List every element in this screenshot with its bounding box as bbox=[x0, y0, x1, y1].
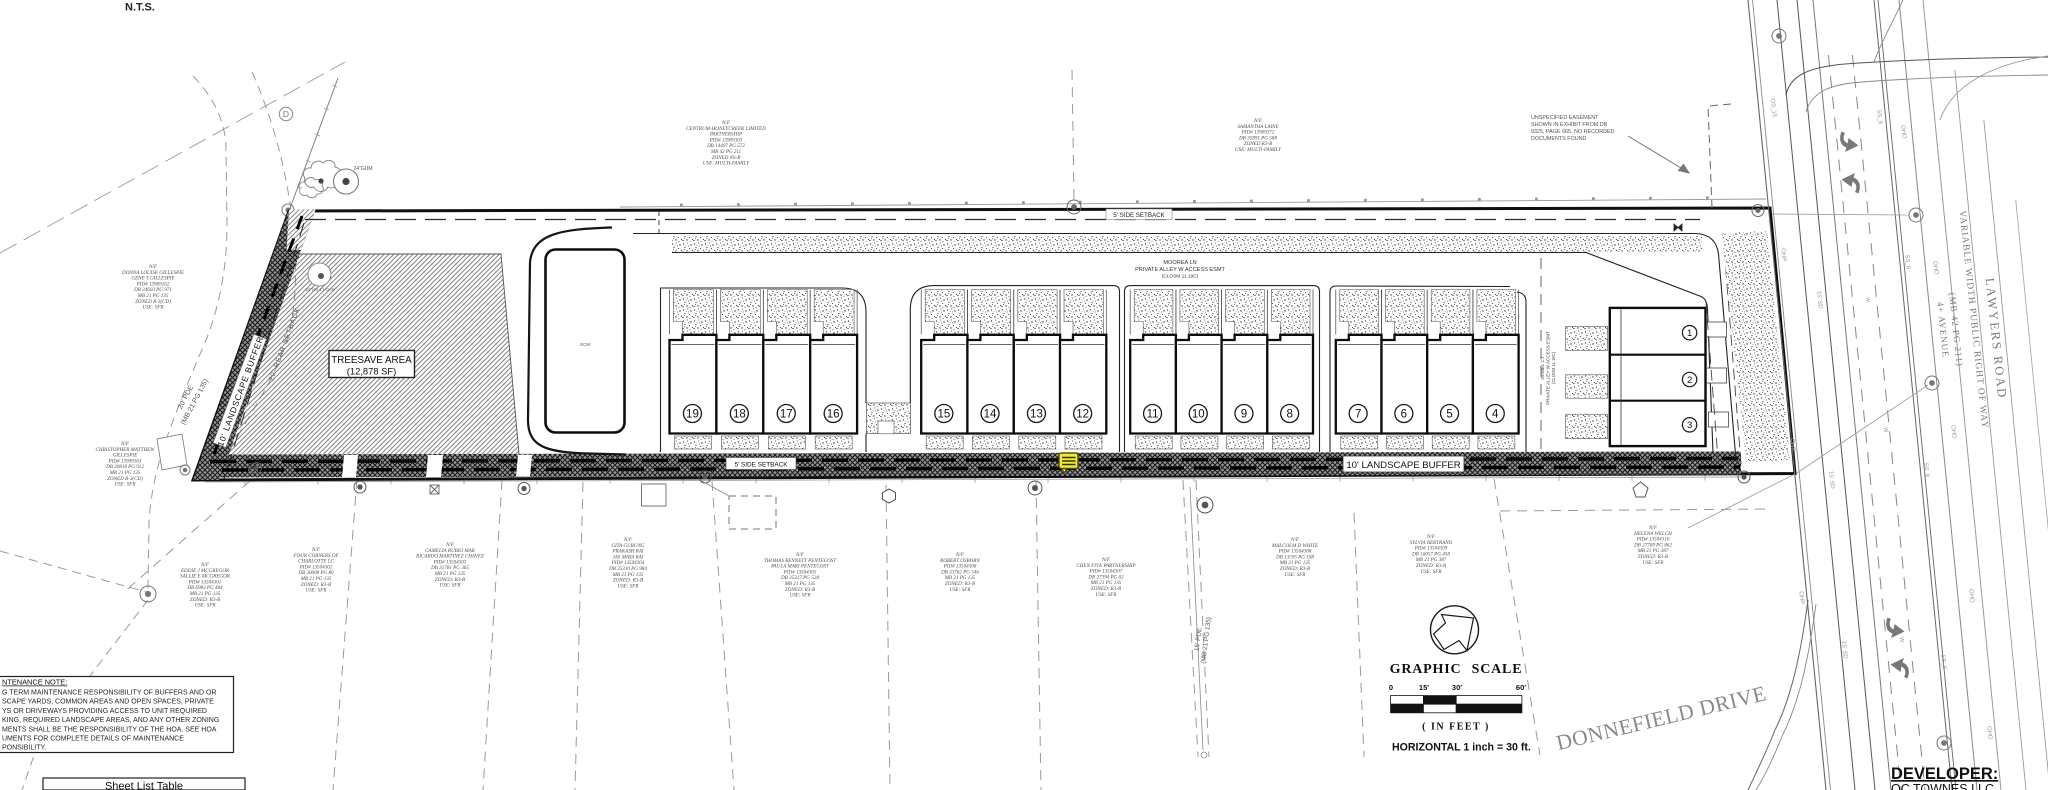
svg-text:W: W bbox=[1864, 297, 1871, 304]
svg-text:D: D bbox=[283, 109, 289, 119]
svg-text:15: 15 bbox=[937, 409, 950, 421]
svg-text:USE: SFR: USE: SFR bbox=[789, 593, 811, 599]
svg-text:16: 16 bbox=[827, 409, 840, 421]
svg-text:NTENANCE NOTE:: NTENANCE NOTE: bbox=[2, 678, 67, 687]
svg-text:DEVELOPER:: DEVELOPER: bbox=[1891, 765, 1998, 783]
svg-text:PRIVATE ALLEY W ACCESS ESMT: PRIVATE ALLEY W ACCESS ESMT bbox=[1546, 331, 1551, 405]
svg-text:UMENTS FOR COMPLETE DETAILS OF: UMENTS FOR COMPLETE DETAILS OF MAINTENAN… bbox=[2, 736, 184, 743]
svg-text:SCAPE YARDS, COMMON AREAS AND: SCAPE YARDS, COMMON AREAS AND OPEN SPACE… bbox=[2, 699, 214, 706]
svg-text:USE: SFR: USE: SFR bbox=[142, 305, 164, 311]
svg-text:11: 11 bbox=[1147, 409, 1159, 421]
svg-text:W: W bbox=[1882, 427, 1889, 434]
svg-text:MOOREA LN: MOOREA LN bbox=[1163, 260, 1196, 266]
svg-text:USE: SFR: USE: SFR bbox=[1420, 569, 1442, 575]
svg-text:MENTS SHALL BE THE RESPONSIBIL: MENTS SHALL BE THE RESPONSIBILITY OF THE… bbox=[2, 726, 217, 733]
svg-text:2: 2 bbox=[1687, 375, 1692, 386]
svg-text:3: 3 bbox=[1687, 420, 1692, 431]
svg-text:17: 17 bbox=[780, 409, 793, 421]
svg-text:GRAPHIC SCALE: GRAPHIC SCALE bbox=[1390, 662, 1523, 677]
svg-text:0: 0 bbox=[1389, 683, 1393, 692]
svg-text:G TERM MAINTENANCE RESPONSIBIL: G TERM MAINTENANCE RESPONSIBILITY OF BUF… bbox=[2, 690, 216, 697]
svg-text:24"GUM: 24"GUM bbox=[353, 166, 372, 172]
svg-text:USE: SFR: USE: SFR bbox=[439, 583, 461, 589]
svg-text:6: 6 bbox=[1401, 409, 1407, 421]
svg-text:PRIVATE ALLEY W ACCESS ESMT: PRIVATE ALLEY W ACCESS ESMT bbox=[1135, 267, 1225, 273]
svg-text:12: 12 bbox=[1076, 409, 1089, 421]
svg-text:7: 7 bbox=[1355, 409, 1361, 421]
svg-text:19: 19 bbox=[686, 409, 699, 421]
svg-text:5' SIDE SETBACK: 5' SIDE SETBACK bbox=[734, 461, 788, 468]
svg-text:15': 15' bbox=[1419, 683, 1429, 692]
svg-text:18: 18 bbox=[733, 409, 746, 421]
svg-text:24"(40.1') OAK: 24"(40.1') OAK bbox=[305, 287, 334, 292]
svg-text:9325, PAGE 665. NO RECORDED: 9325, PAGE 665. NO RECORDED bbox=[1531, 129, 1615, 135]
svg-text:( IN FEET ): ( IN FEET ) bbox=[1422, 722, 1490, 733]
svg-text:YS OR DRIVEWAYS PROVIDING ACCE: YS OR DRIVEWAYS PROVIDING ACCESS TO UNIT… bbox=[2, 708, 207, 715]
svg-text:1: 1 bbox=[1687, 328, 1692, 339]
svg-text:(12,878 SF): (12,878 SF) bbox=[347, 366, 397, 377]
svg-text:5: 5 bbox=[1446, 409, 1452, 421]
svg-text:SCM: SCM bbox=[580, 342, 590, 347]
svg-text:USE: SFR: USE: SFR bbox=[617, 583, 639, 589]
svg-text:5' SIDE SETBACK: 5' SIDE SETBACK bbox=[1113, 212, 1165, 219]
svg-text:DOCUMENTS FOUND: DOCUMENTS FOUND bbox=[1531, 136, 1587, 142]
svg-text:10: 10 bbox=[1192, 409, 1205, 421]
svg-text:USE: SFR: USE: SFR bbox=[1284, 572, 1306, 578]
svg-text:USE: SFR: USE: SFR bbox=[1642, 560, 1664, 566]
svg-text:USE: SFR: USE: SFR bbox=[949, 587, 971, 593]
svg-text:13: 13 bbox=[1030, 409, 1043, 421]
svg-text:USE: SFR: USE: SFR bbox=[194, 603, 216, 609]
svg-text:8: 8 bbox=[1286, 409, 1292, 421]
svg-text:W: W bbox=[1898, 637, 1905, 644]
svg-text:(CLOSM 11.19C): (CLOSM 11.19C) bbox=[1162, 274, 1199, 280]
svg-text:14: 14 bbox=[984, 409, 997, 421]
svg-text:USE: SFR: USE: SFR bbox=[1095, 592, 1117, 598]
svg-text:(CLOSM 11.19C): (CLOSM 11.19C) bbox=[1551, 351, 1556, 384]
svg-text:GAMEL CT: GAMEL CT bbox=[1540, 356, 1545, 380]
svg-text:KING, REQUIRED LANDSCAPE AREAS: KING, REQUIRED LANDSCAPE AREAS, AND ANY … bbox=[2, 717, 219, 724]
svg-text:HORIZONTAL 1 inch = 30 ft.: HORIZONTAL 1 inch = 30 ft. bbox=[1392, 742, 1531, 754]
svg-text:UNSPECIFIED EASEMENT: UNSPECIFIED EASEMENT bbox=[1531, 115, 1599, 121]
svg-text:Sheet List Table: Sheet List Table bbox=[105, 781, 183, 790]
svg-text:N.T.S.: N.T.S. bbox=[125, 2, 155, 14]
svg-text:USE: SFR: USE: SFR bbox=[114, 482, 136, 488]
svg-text:10' LANDSCAPE BUFFER: 10' LANDSCAPE BUFFER bbox=[1346, 460, 1460, 471]
svg-text:4: 4 bbox=[1492, 409, 1499, 421]
svg-text:TREESAVE AREA: TREESAVE AREA bbox=[331, 355, 412, 366]
svg-text:60': 60' bbox=[1516, 683, 1526, 692]
svg-text:USE: SFR: USE: SFR bbox=[305, 588, 327, 594]
svg-text:SHOWN IN EXHIBIT FROM DB: SHOWN IN EXHIBIT FROM DB bbox=[1531, 122, 1608, 128]
svg-text:USE: MULTI-FAMILY: USE: MULTI-FAMILY bbox=[703, 161, 750, 167]
svg-text:PONSIBILITY.: PONSIBILITY. bbox=[2, 745, 46, 752]
svg-text:9: 9 bbox=[1241, 409, 1247, 421]
svg-text:QC TOWNES LLC: QC TOWNES LLC bbox=[1891, 782, 1994, 790]
svg-text:30': 30' bbox=[1452, 683, 1462, 692]
svg-text:USE: MULTI-FAMILY: USE: MULTI-FAMILY bbox=[1235, 147, 1282, 153]
